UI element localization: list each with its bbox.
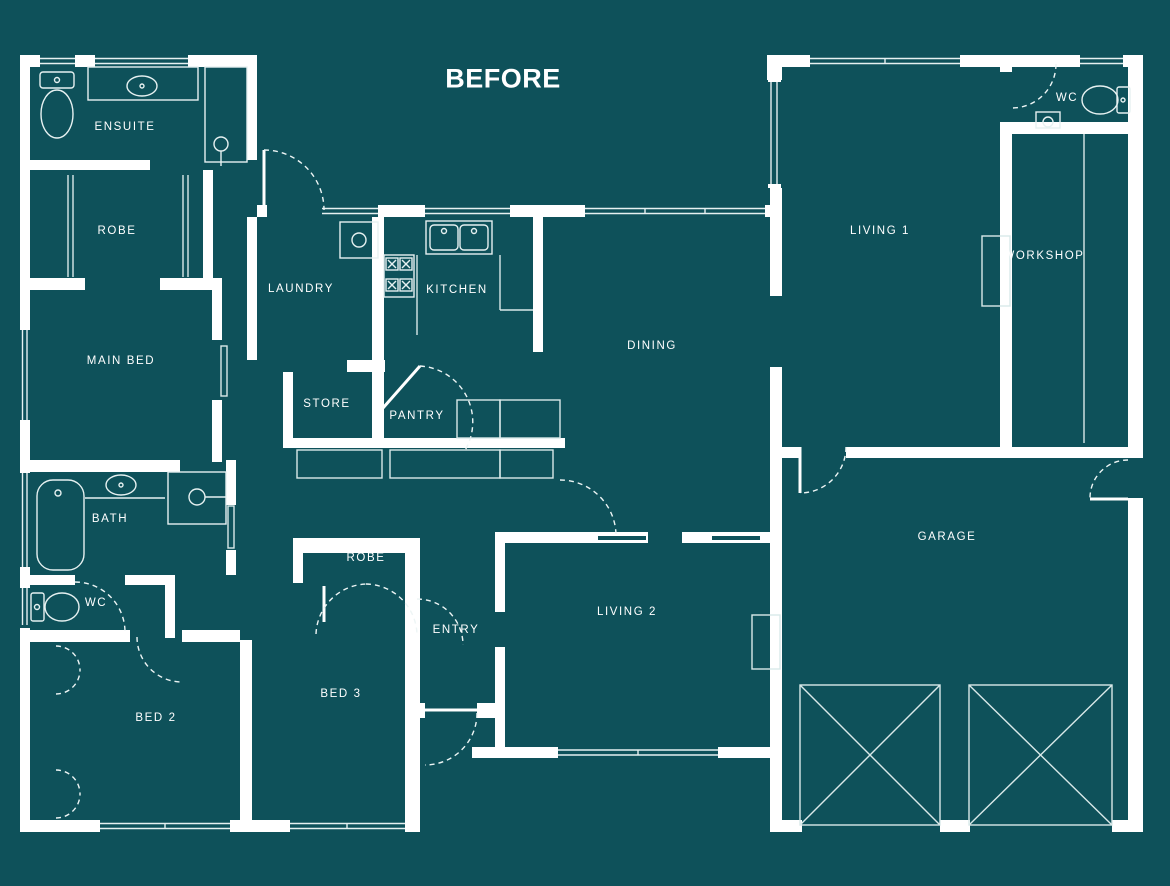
garage-panel-icon xyxy=(800,685,1112,825)
room-label-robe-main: ROBE xyxy=(98,225,137,237)
room-label-bed-2: BED 2 xyxy=(135,712,176,724)
room-label-store: STORE xyxy=(303,398,350,410)
kitchen-sink-icon xyxy=(426,221,492,254)
room-label-entry: ENTRY xyxy=(433,624,480,636)
floor-plan: BEFORE ENSUITE ROBE MAIN BED LAUNDRY KIT… xyxy=(0,0,1170,886)
toilet-icon xyxy=(1082,86,1130,114)
plan-title: BEFORE xyxy=(445,64,561,95)
room-label-laundry: LAUNDRY xyxy=(268,283,334,295)
walls xyxy=(20,55,1143,832)
linen-cupboard-icon xyxy=(297,450,382,478)
floor-plan-drawing xyxy=(0,0,1170,886)
windows xyxy=(20,55,1123,832)
linen-cupboard-icon xyxy=(390,450,500,478)
room-label-wc-left: WC xyxy=(85,597,107,609)
room-label-workshop: WORKSHOP xyxy=(1003,250,1084,262)
sliding-door-icon xyxy=(221,346,227,396)
room-label-living-2: LIVING 2 xyxy=(597,606,657,618)
linen-cupboard-icon xyxy=(500,450,553,478)
room-label-wc-right: WC xyxy=(1056,92,1078,104)
door-leaves xyxy=(264,150,1128,710)
room-label-bath: BATH xyxy=(92,513,128,525)
room-label-robe-bed3: ROBE xyxy=(347,552,386,564)
toilet-icon xyxy=(40,72,74,138)
room-label-dining: DINING xyxy=(627,340,677,352)
sliding-door-icon xyxy=(228,506,234,548)
joinery-details xyxy=(68,134,1112,825)
room-label-living-1: LIVING 1 xyxy=(850,225,910,237)
basin-icon xyxy=(88,67,198,100)
room-label-bed-3: BED 3 xyxy=(320,688,361,700)
toilet-icon xyxy=(31,593,79,621)
room-label-main-bed: MAIN BED xyxy=(87,355,155,367)
basin-icon xyxy=(85,475,165,498)
room-label-pantry: PANTRY xyxy=(389,410,444,422)
cooktop-icon xyxy=(384,255,414,297)
room-label-garage: GARAGE xyxy=(918,531,977,543)
bathtub-icon xyxy=(37,480,84,570)
shower-icon xyxy=(205,67,247,166)
room-label-kitchen: KITCHEN xyxy=(426,284,488,296)
shower-icon xyxy=(168,472,226,524)
room-label-ensuite: ENSUITE xyxy=(94,121,155,133)
